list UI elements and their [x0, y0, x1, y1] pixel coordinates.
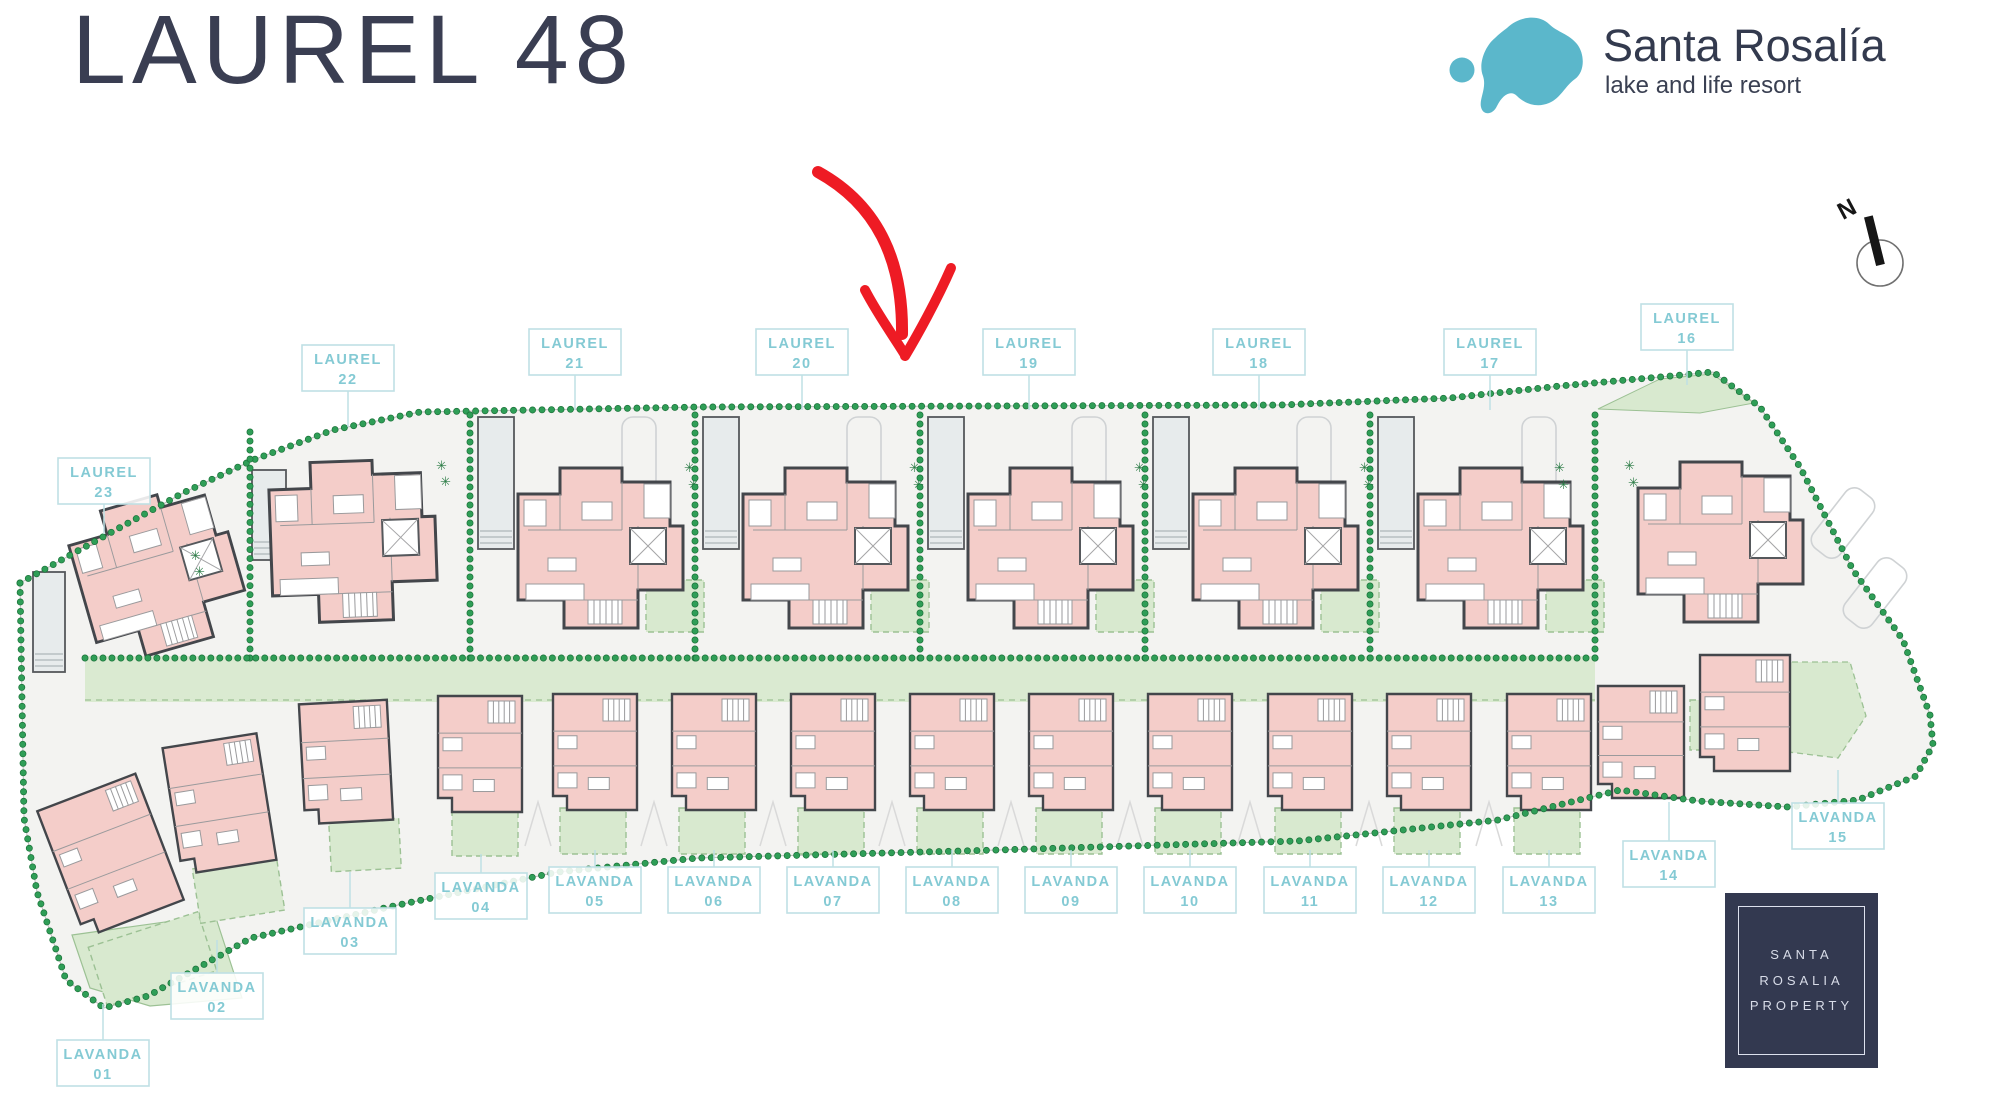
hedge-dot [596, 406, 602, 412]
hedge-dot [387, 655, 393, 661]
hedge-dot [59, 964, 65, 970]
hedge-dot [133, 516, 139, 522]
hedge-dot [467, 493, 473, 499]
hedge-dot [662, 405, 668, 411]
hedge-dot [1349, 655, 1355, 661]
hedge-dot [467, 439, 473, 445]
hedge-dot [1859, 795, 1865, 801]
hedge-dot [1522, 810, 1528, 816]
hedge-dot [18, 618, 24, 624]
hedge-dot [19, 722, 25, 728]
hedge-dot [332, 426, 338, 432]
hedge-dot [1367, 601, 1373, 607]
hedge-dot [937, 403, 943, 409]
hedge-dot [1142, 448, 1148, 454]
hedge-dot [106, 1003, 112, 1009]
hedge-dot [270, 449, 276, 455]
hedge-dot [1142, 412, 1148, 418]
hedge-dot [634, 405, 640, 411]
hedge-dot [316, 655, 322, 661]
hedge-dot [247, 610, 253, 616]
hedge-dot [666, 655, 672, 661]
hedge-dot [955, 848, 961, 854]
unit-label-name: LAUREL [541, 336, 609, 352]
hedge-dot [1107, 655, 1113, 661]
hedge-dot [1239, 840, 1245, 846]
unit-label-name: LAVANDA [793, 874, 872, 890]
hedge-dot [1004, 403, 1010, 409]
hedge-dot [1364, 398, 1370, 404]
hedge-dot [692, 448, 698, 454]
hedge-dot [692, 502, 698, 508]
hedge-dot [558, 406, 564, 412]
hedge-dot [784, 853, 790, 859]
hedge-dot [125, 998, 131, 1004]
hedge-dot [642, 860, 648, 866]
hedge-dot [621, 655, 627, 661]
hedge-dot [1367, 466, 1373, 472]
hedge-dot [738, 404, 744, 410]
unit-label-name: LAVANDA [63, 1047, 142, 1063]
hedge-dot [900, 403, 906, 409]
hedge-dot [1506, 388, 1512, 394]
hedge-dot [467, 619, 473, 625]
hedge-dot [692, 430, 698, 436]
pool [1378, 417, 1414, 549]
hedge-dot [247, 447, 253, 453]
hedge-dot [26, 845, 32, 851]
hedge-dot [630, 655, 636, 661]
hedge-dot [689, 855, 695, 861]
hedge-dot [1610, 378, 1616, 384]
lavanda-label-03: LAVANDA03 [304, 908, 396, 954]
unit-label-number: 10 [1180, 894, 1199, 910]
hedge-dot [833, 403, 839, 409]
unit-label-name: LAVANDA [1031, 874, 1110, 890]
lavanda-label-12: LAVANDA12 [1383, 867, 1475, 913]
hedge-dot [795, 404, 801, 410]
hedge-dot [396, 655, 402, 661]
hedge-dot [495, 655, 501, 661]
hedge-dot [1891, 625, 1897, 631]
hedge-dot [692, 565, 698, 571]
hedge-dot [1032, 403, 1038, 409]
hedge-dot [1107, 844, 1113, 850]
hedge-dot [917, 412, 923, 418]
hedge-dot [1574, 655, 1580, 661]
hedge-dot [20, 760, 26, 766]
hedge-dot [1596, 792, 1602, 798]
hedge-dot [692, 466, 698, 472]
pool [703, 417, 739, 549]
hedge-dot [467, 529, 473, 535]
hedge-dot [513, 655, 519, 661]
hedge-dot [765, 655, 771, 661]
hedge-dot [56, 955, 62, 961]
hedge-dot [1624, 788, 1630, 794]
unit-label-number: 09 [1061, 894, 1080, 910]
hedge-dot [917, 610, 923, 616]
hedge-dot [1930, 740, 1936, 746]
hedge-dot [1069, 845, 1075, 851]
hedge-dot [1089, 655, 1095, 661]
hedge-dot [1790, 453, 1796, 459]
hedge-dot [1421, 655, 1427, 661]
hedge-dot [360, 421, 366, 427]
hedge-dot [692, 583, 698, 589]
unit-label-name: LAUREL [768, 336, 836, 352]
hedge-dot [1146, 402, 1152, 408]
hedge-dot [917, 421, 923, 427]
hedge-dot [1355, 399, 1361, 405]
hedge-dot [692, 592, 698, 598]
hedge-dot [1559, 801, 1565, 807]
hedge-dot [143, 993, 149, 999]
hedge-dot [1160, 655, 1166, 661]
unit-label-number: 16 [1677, 331, 1696, 347]
laurel-label-16: LAUREL16 [1641, 304, 1733, 350]
hedge-dot [1485, 818, 1491, 824]
hedge-dot [873, 655, 879, 661]
hedge-dot [1089, 403, 1095, 409]
hedge-dot [1249, 839, 1255, 845]
hedge-dot [1126, 843, 1132, 849]
hedge-dot [209, 957, 215, 963]
hedge-dot [1232, 402, 1238, 408]
hedge-dot [1002, 847, 1008, 853]
hedge-dot [1367, 439, 1373, 445]
hedge-dot [1430, 655, 1436, 661]
hedge-dot [1051, 403, 1057, 409]
hedge-dot [1367, 619, 1373, 625]
hedge-dot [1142, 619, 1148, 625]
hedge-dot [100, 655, 106, 661]
hedge-dot [67, 552, 73, 558]
unit-label-number: 20 [792, 356, 811, 372]
hedge-dot [1908, 658, 1914, 664]
hedge-dot [692, 412, 698, 418]
hedge-dot [18, 656, 24, 662]
unit-label-name: LAUREL [1225, 336, 1293, 352]
hedge-dot [1232, 655, 1238, 661]
hedge-dot [1304, 655, 1310, 661]
badge-line-3: PROPERTY [1750, 993, 1853, 1018]
hedge-dot [1078, 844, 1084, 850]
hedge-dot [917, 592, 923, 598]
hedge-dot [1142, 556, 1148, 562]
hedge-dot [467, 430, 473, 436]
hedge-dot [1538, 655, 1544, 661]
property-badge: SANTA ROSALIA PROPERTY [1725, 893, 1878, 1068]
hedge-dot [594, 655, 600, 661]
hedge-dot [936, 655, 942, 661]
hedge-dot [200, 480, 206, 486]
hedge-dot [1513, 812, 1519, 818]
hedge-dot [414, 655, 420, 661]
hedge-dot [824, 403, 830, 409]
hedge-dot [727, 854, 733, 860]
hedge-dot [1438, 823, 1444, 829]
hedge-dot [82, 655, 88, 661]
hedge-dot [473, 408, 479, 414]
hedge-dot [1858, 578, 1864, 584]
unit-label-number: 02 [207, 1000, 226, 1016]
hedge-dot [1592, 430, 1598, 436]
lavanda-house [1598, 686, 1684, 798]
hedge-dot [1367, 421, 1373, 427]
hedge-dot [850, 851, 856, 857]
hedge-dot [58, 557, 64, 563]
hedge-dot [1839, 546, 1845, 552]
hedge-dot [1080, 403, 1086, 409]
hedge-dot [1017, 655, 1023, 661]
hedge-dot [1813, 495, 1819, 501]
hedge-dot [397, 413, 403, 419]
hedge-dot [1367, 655, 1373, 661]
hedge-dot [680, 856, 686, 862]
hedge-dot [450, 655, 456, 661]
hedge-dot [467, 601, 473, 607]
hedge-dot [1459, 394, 1465, 400]
hedge-dot [540, 655, 546, 661]
hedge-dot [175, 493, 181, 499]
garden-patch [917, 808, 983, 854]
hedge-dot [209, 476, 215, 482]
hedge-dot [692, 547, 698, 553]
hedge-dot [125, 520, 131, 526]
hedge-dot [956, 403, 962, 409]
hedge-dot [247, 555, 253, 561]
pool [33, 572, 65, 672]
hedge-dot [794, 852, 800, 858]
hedge-dot [1928, 721, 1934, 727]
hedge-dot [1779, 438, 1785, 444]
hedge-dot [1367, 502, 1373, 508]
hedge-dot [1469, 393, 1475, 399]
hedge-dot [917, 475, 923, 481]
hedge-dot [1203, 402, 1209, 408]
hedge-dot [918, 403, 924, 409]
hedge-dot [692, 601, 698, 607]
unit-label-name: LAUREL [995, 336, 1063, 352]
hedge-dot [1620, 377, 1626, 383]
lavanda-label-01: LAVANDA01 [57, 1040, 149, 1086]
hedge-dot [1287, 838, 1293, 844]
hedge-dot [314, 433, 320, 439]
hedge-dot [427, 895, 433, 901]
hedge-dot [247, 519, 253, 525]
hedge-dot [1367, 448, 1373, 454]
hedge-dot [917, 529, 923, 535]
tree-icon: ✳ [1624, 458, 1636, 473]
unit-label-name: LAVANDA [1150, 874, 1229, 890]
hedge-dot [44, 919, 50, 925]
hedge-dot [529, 874, 535, 880]
lavanda-label-05: LAVANDA05 [549, 867, 641, 913]
hedge-dot [693, 655, 699, 661]
unit-label-number: 05 [585, 894, 604, 910]
hedge-dot [247, 628, 253, 634]
hedge-dot [247, 601, 253, 607]
hedge-dot [917, 565, 923, 571]
hedge-dot [1367, 529, 1373, 535]
hedge-dot [1903, 777, 1909, 783]
hedge-dot [482, 408, 488, 414]
hedge-dot [936, 848, 942, 854]
hedge-dot [296, 439, 302, 445]
hedge-dot [1026, 655, 1032, 661]
hedge-dot [846, 655, 852, 661]
hedge-dot [1410, 826, 1416, 832]
hedge-dot [1125, 655, 1131, 661]
hedge-dot [253, 655, 259, 661]
hedge-dot [19, 694, 25, 700]
hedge-dot [1156, 402, 1162, 408]
hedge-dot [917, 502, 923, 508]
hedge-dot [1547, 655, 1553, 661]
garden-patch [560, 808, 626, 854]
hedge-dot [235, 655, 241, 661]
hedge-dot [1137, 402, 1143, 408]
lavanda-label-11: LAVANDA11 [1264, 867, 1356, 913]
hedge-dot [1450, 395, 1456, 401]
hedge-dot [1289, 401, 1295, 407]
hedge-dot [1134, 655, 1140, 661]
hedge-dot [1008, 655, 1014, 661]
hedge-dot [467, 457, 473, 463]
lavanda-house [299, 700, 393, 824]
hedge-dot [692, 646, 698, 652]
hedge-dot [692, 475, 698, 481]
unit-label-number: 14 [1659, 868, 1678, 884]
hedge-dot [1592, 592, 1598, 598]
hedge-dot [1447, 822, 1453, 828]
hedge-dot [467, 583, 473, 589]
unit-label-number: 11 [1301, 894, 1319, 910]
hedge-dot [822, 852, 828, 858]
hedge-dot [945, 655, 951, 661]
hedge-dot [271, 655, 277, 661]
hedge-dot [603, 655, 609, 661]
hedge-dot [864, 655, 870, 661]
unit-label-name: LAUREL [1653, 311, 1721, 327]
hedge-dot [1695, 370, 1701, 376]
hedge-dot [75, 986, 81, 992]
hedge-dot [1042, 403, 1048, 409]
hedge-dot [586, 406, 592, 412]
hedge-dot [247, 456, 253, 462]
hedge-dot [467, 574, 473, 580]
hedge-dot [491, 408, 497, 414]
laurel-label-20: LAUREL20 [756, 329, 848, 375]
hedge-dot [927, 655, 933, 661]
hedge-dot [399, 901, 405, 907]
hedge-dot [83, 543, 89, 549]
hedge-dot [1784, 804, 1790, 810]
hedge-dot [692, 529, 698, 535]
hedge-dot [1431, 396, 1437, 402]
hedge-dot [917, 430, 923, 436]
hedge-dot [1592, 511, 1598, 517]
hedge-dot [378, 417, 384, 423]
hedge-dot [928, 403, 934, 409]
hedge-dot [1344, 833, 1350, 839]
hedge-dot [19, 703, 25, 709]
hedge-dot [1476, 819, 1482, 825]
hedge-dot [247, 619, 253, 625]
hedge-dot [247, 528, 253, 534]
hedge-dot [467, 466, 473, 472]
hedge-dot [467, 556, 473, 562]
hedge-dot [280, 655, 286, 661]
hedge-dot [917, 457, 923, 463]
hedge-dot [1391, 828, 1397, 834]
hedge-dot [1142, 502, 1148, 508]
hedge-dot [1142, 484, 1148, 490]
hedge-dot [539, 407, 545, 413]
hedge-dot [226, 655, 232, 661]
hedge-dot [917, 601, 923, 607]
hedge-dot [1367, 628, 1373, 634]
hedge-dot [1222, 402, 1228, 408]
hedge-dot [1098, 655, 1104, 661]
hedge-dot [1822, 512, 1828, 518]
lavanda-label-09: LAVANDA09 [1025, 867, 1117, 913]
hedge-dot [1592, 646, 1598, 652]
hedge-dot [1800, 470, 1806, 476]
hedge-dot [441, 655, 447, 661]
hedge-dot [1592, 502, 1598, 508]
hedge-dot [963, 655, 969, 661]
hedge-dot [1592, 601, 1598, 607]
unit-label-name: LAVANDA [1798, 810, 1877, 826]
hedge-dot [1367, 583, 1373, 589]
hedge-dot [1466, 820, 1472, 826]
hedge-dot [672, 404, 678, 410]
hedge-dot [828, 655, 834, 661]
hedge-dot [28, 854, 34, 860]
hedge-dot [160, 985, 166, 991]
hedge-dot [1367, 475, 1373, 481]
hedge-dot [719, 404, 725, 410]
hedge-dot [1804, 478, 1810, 484]
hedge-dot [917, 547, 923, 553]
hedge-dot [1587, 794, 1593, 800]
hedge-dot [1169, 655, 1175, 661]
hedge-dot [1187, 655, 1193, 661]
hedge-dot [183, 488, 189, 494]
unit-label-name: LAVANDA [674, 874, 753, 890]
hedge-dot [1142, 520, 1148, 526]
hedge-dot [288, 926, 294, 932]
hedge-dot [262, 655, 268, 661]
tree-icon: ✳ [1558, 477, 1570, 492]
hedge-dot [1097, 844, 1103, 850]
hedge-dot [681, 404, 687, 410]
hedge-dot [1466, 655, 1472, 661]
unit-label-name: LAVANDA [1629, 848, 1708, 864]
hedge-dot [999, 655, 1005, 661]
hedge-dot [1926, 749, 1932, 755]
hedge-dot [985, 403, 991, 409]
hedge-dot [917, 466, 923, 472]
hedge-dot [692, 484, 698, 490]
hedge-dot [966, 403, 972, 409]
hedge-dot [287, 443, 293, 449]
lavanda-label-15: LAVANDA15 [1792, 803, 1884, 849]
hedge-dot [109, 655, 115, 661]
lavanda-house [1029, 694, 1113, 810]
